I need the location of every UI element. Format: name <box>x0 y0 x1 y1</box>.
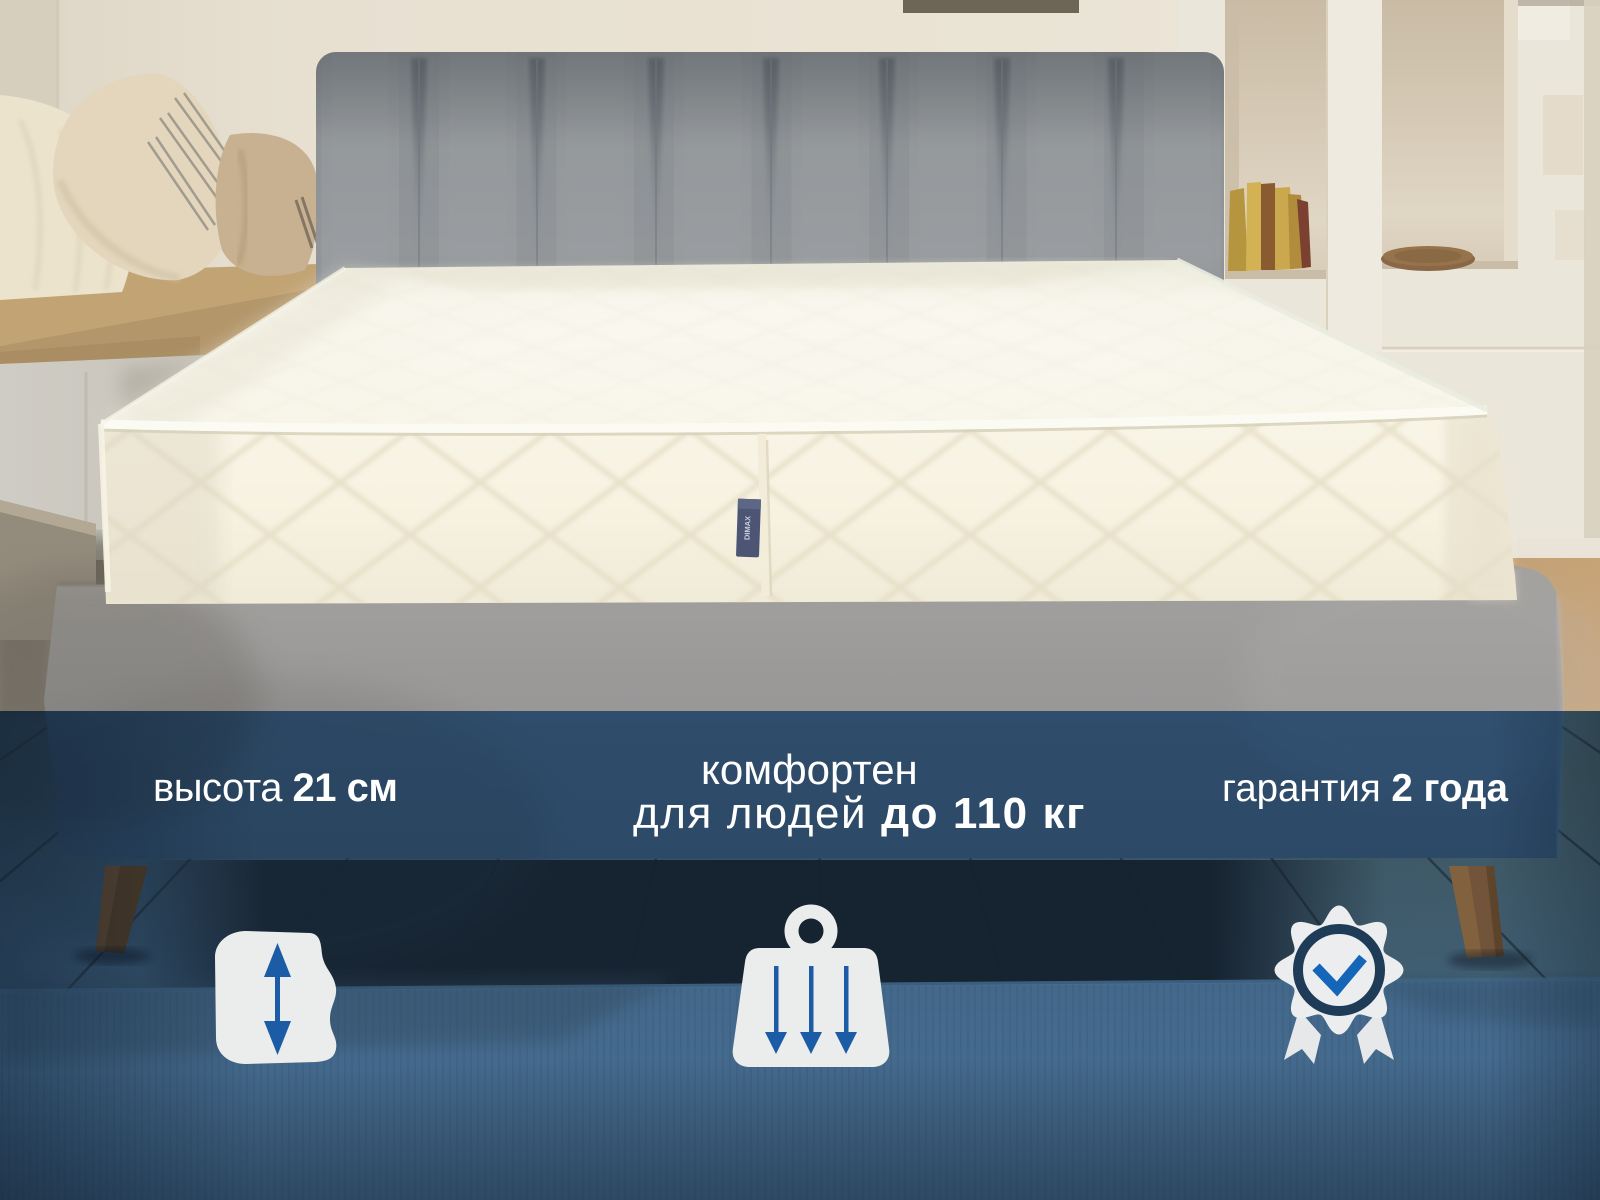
svg-text:DIMAX: DIMAX <box>743 516 753 540</box>
